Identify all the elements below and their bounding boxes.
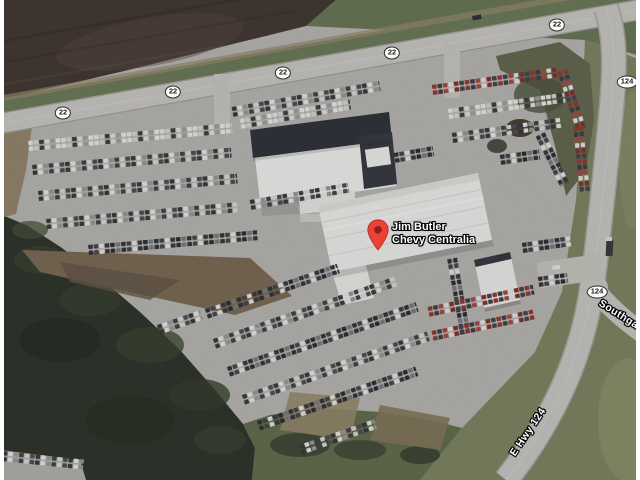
route-shield-124: 124 [587, 286, 608, 299]
photo-border-left [0, 0, 4, 480]
photo-border-right [636, 0, 640, 480]
route-shield-124: 124 [617, 76, 638, 89]
place-pin[interactable] [367, 219, 389, 251]
satellite-map-canvas[interactable]: 2222222222124124 E Hwy 124Southgate Jim … [0, 0, 640, 480]
map-pin-icon [367, 219, 389, 251]
place-label[interactable]: Jim Butler Chevy Centralia [392, 221, 475, 247]
place-label-line1: Jim Butler [392, 221, 475, 234]
place-label-line2: Chevy Centralia [392, 234, 475, 247]
